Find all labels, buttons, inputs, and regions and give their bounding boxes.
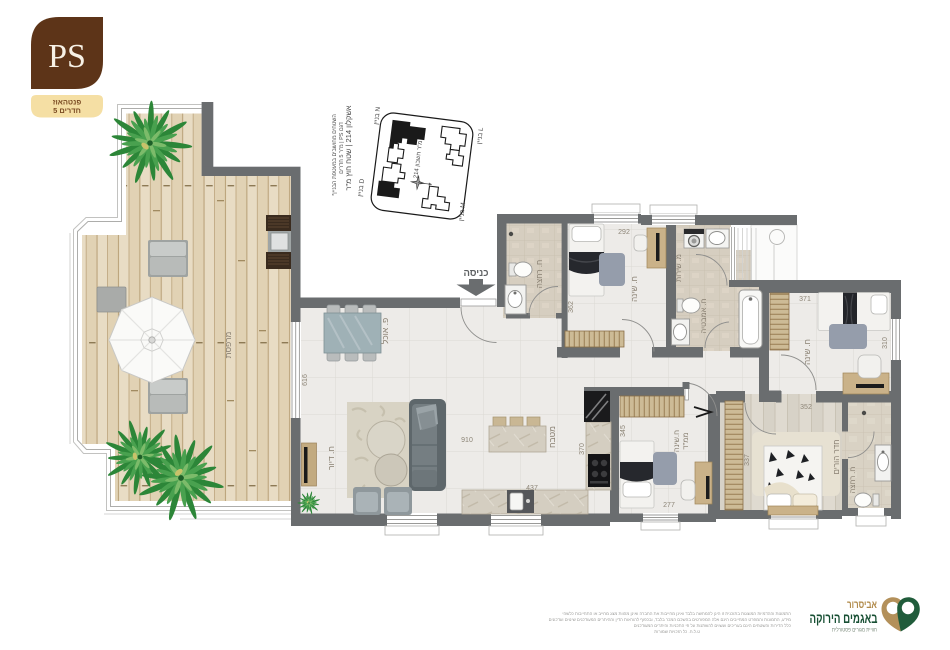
svg-text:חדר הורים: חדר הורים: [832, 440, 841, 475]
svg-text:באגמים הירוקה: באגמים הירוקה: [810, 610, 878, 626]
svg-text:292: 292: [618, 229, 630, 236]
svg-text:437: 437: [526, 485, 538, 492]
svg-text:כלל הדירות והשטחים הינם בעריכי: כלל הדירות והשטחים הינם בעריכים ועשוים ל…: [634, 623, 792, 628]
svg-text:*השטחים מחושבים במעטפת הבניין: *השטחים מחושבים במעטפת הבניין: [332, 114, 338, 196]
svg-text:362: 362: [568, 301, 575, 313]
svg-text:337: 337: [744, 454, 751, 466]
svg-text:ממ"ד: ממ"ד: [681, 432, 690, 449]
svg-text:371: 371: [799, 296, 811, 303]
svg-text:910: 910: [461, 437, 473, 444]
svg-text:התמונות וההדמיות המוצגות בתוכנ: התמונות וההדמיות המוצגות בתוכנית זו הינן…: [562, 611, 791, 616]
svg-text:חוויית מגורים פסטורלית: חוויית מגורים פסטורלית: [832, 626, 877, 634]
svg-text:277: 277: [663, 502, 675, 509]
svg-text:כניסה: כניסה: [464, 268, 489, 279]
svg-text:370: 370: [579, 443, 586, 455]
svg-text:מידע, התמונות והמפרט המחייבים: מידע, התמונות והמפרט המחייבים הינם אלה ה…: [549, 617, 791, 622]
svg-text:345: 345: [620, 425, 627, 437]
svg-text:מרפסת: מרפסת: [223, 332, 233, 359]
svg-text:מ. שירות: מ. שירות: [674, 254, 683, 282]
svg-text:מטבח: מטבח: [547, 426, 557, 448]
svg-text:אשקלון 214 | שטח חוץ מ"ר: אשקלון 214 | שטח חוץ מ"ר: [344, 105, 353, 190]
svg-text:310: 310: [882, 337, 889, 349]
svg-text:ח. רחצה: ח. רחצה: [535, 260, 544, 288]
svg-text:5 חדרים: 5 חדרים: [53, 106, 81, 115]
svg-text:ט.ל.ח. כל הזכויות שמורות: ט.ל.ח. כל הזכויות שמורות: [654, 629, 700, 634]
svg-text:פ. אוכל: פ. אוכל: [380, 318, 390, 344]
svg-text:ח. שינה: ח. שינה: [803, 339, 812, 365]
svg-text:ח. שינה: ח. שינה: [630, 276, 639, 302]
svg-text:PS: PS: [48, 38, 86, 75]
svg-text:352: 352: [800, 404, 812, 411]
svg-text:ח. דיור: ח. דיור: [326, 446, 336, 470]
svg-text:ח.שינה: ח.שינה: [672, 430, 681, 452]
svg-text:616: 616: [302, 374, 309, 386]
svg-text:ח. אמבטיה: ח. אמבטיה: [699, 298, 708, 333]
svg-text:מ"ר 5 חדרים | PS דגם: מ"ר 5 חדרים | PS דגם: [339, 122, 345, 174]
svg-text:ח. רחצה: ח. רחצה: [848, 467, 857, 494]
